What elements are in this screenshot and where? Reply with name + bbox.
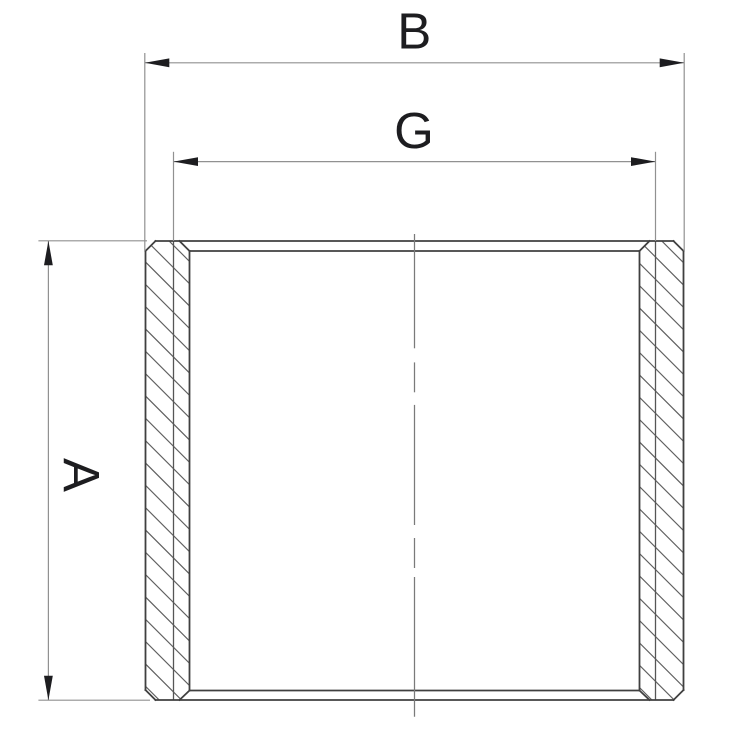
svg-text:A: A: [53, 458, 110, 492]
svg-text:G: G: [394, 102, 434, 159]
svg-text:B: B: [397, 2, 431, 59]
